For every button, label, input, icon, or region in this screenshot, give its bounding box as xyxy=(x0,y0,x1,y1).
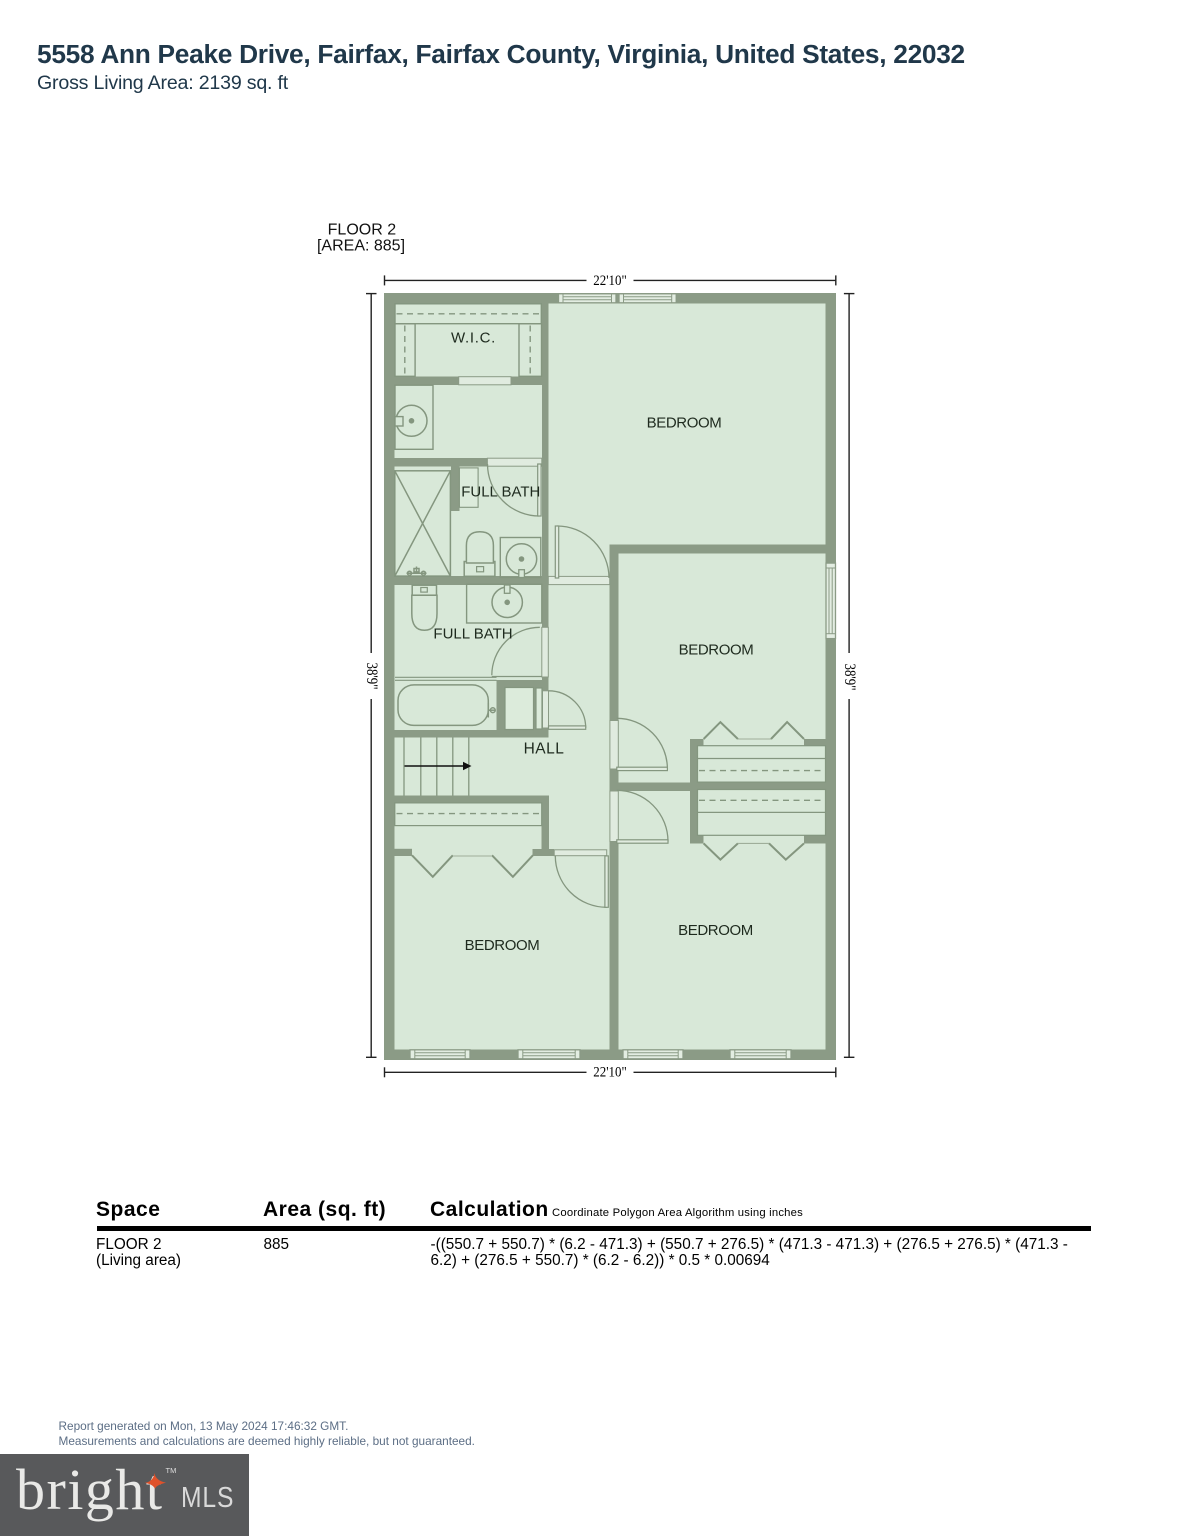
svg-text:[AREA: 885]: [AREA: 885] xyxy=(317,237,405,254)
svg-text:22'10": 22'10" xyxy=(593,273,627,289)
svg-text:FLOOR 2: FLOOR 2 xyxy=(328,222,397,239)
svg-text:FULL BATH: FULL BATH xyxy=(461,484,540,501)
svg-text:HALL: HALL xyxy=(524,741,565,758)
svg-text:BEDROOM: BEDROOM xyxy=(679,642,754,659)
svg-text:BEDROOM: BEDROOM xyxy=(678,922,753,939)
svg-text:38'9": 38'9" xyxy=(363,663,380,690)
svg-text:BEDROOM: BEDROOM xyxy=(465,937,540,954)
svg-text:22'10": 22'10" xyxy=(593,1065,627,1081)
svg-text:38'9": 38'9" xyxy=(841,664,858,691)
svg-text:BEDROOM: BEDROOM xyxy=(647,414,722,431)
svg-text:FULL BATH: FULL BATH xyxy=(433,626,512,643)
svg-text:W.I.C.: W.I.C. xyxy=(451,330,496,347)
